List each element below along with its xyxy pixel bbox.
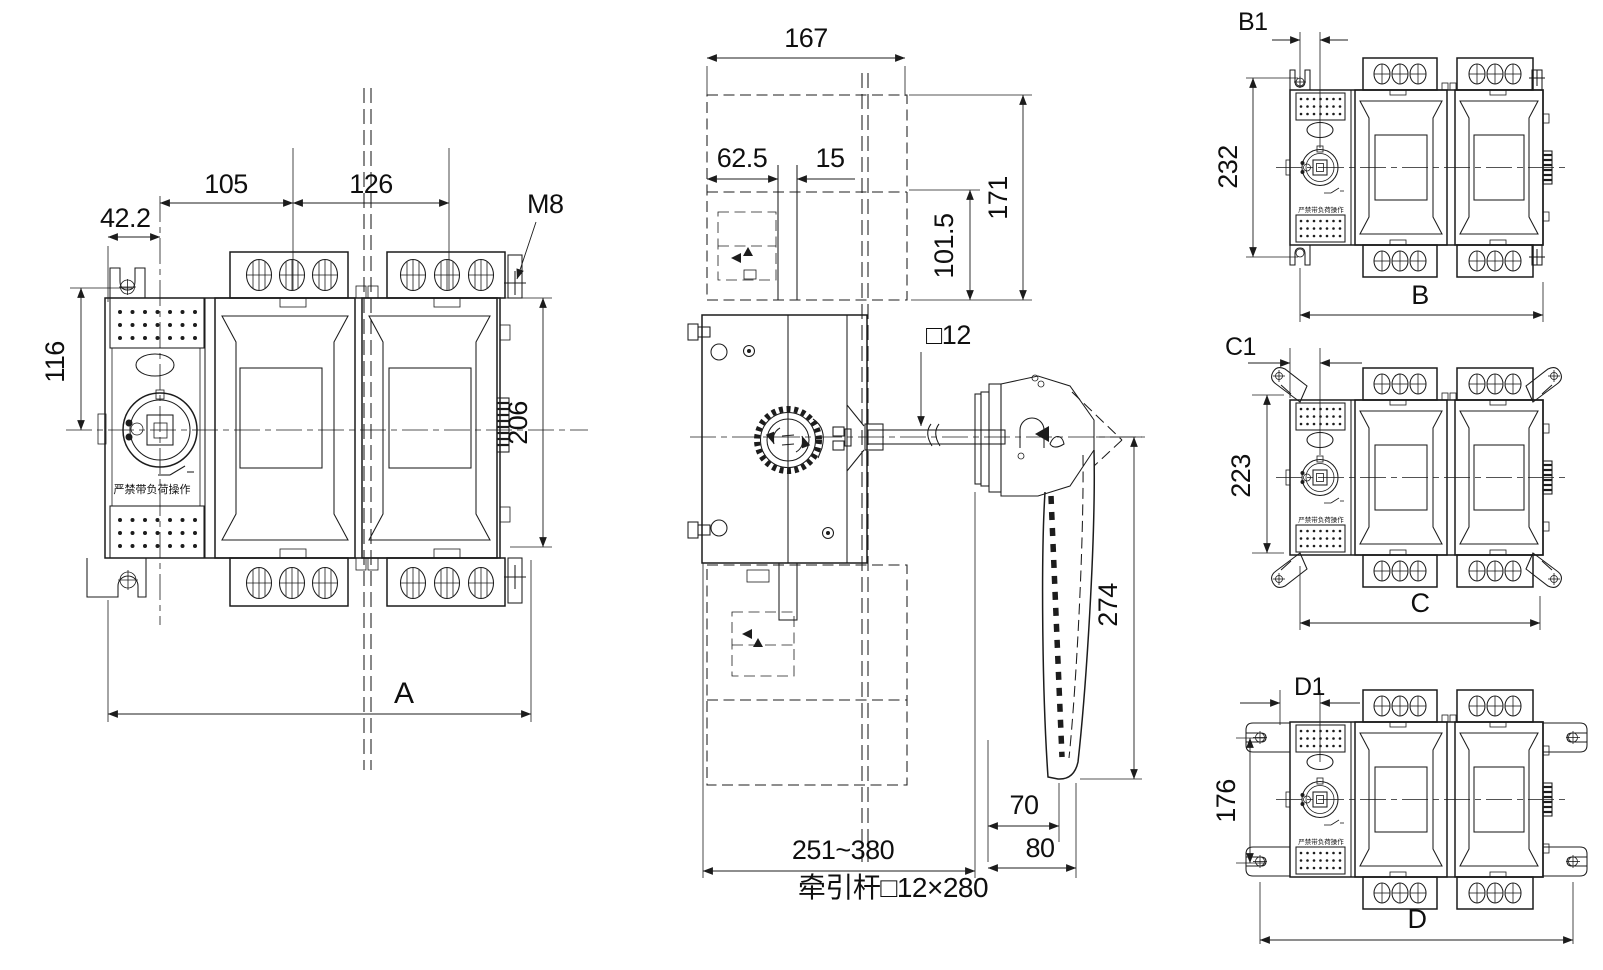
bracket-side-bottom-right — [1543, 847, 1587, 876]
bracket-wing-top-left — [1272, 368, 1307, 402]
bracket-wing-bottom-right — [1526, 553, 1561, 587]
dim-mount-to-center: 116 — [40, 341, 70, 383]
gear-actuator — [757, 409, 823, 471]
dim-176: 176 — [1211, 779, 1241, 823]
terminal-blocks — [230, 252, 505, 606]
mounting-bracket-top-left — [110, 268, 145, 298]
bracket-wing-top-right — [1526, 368, 1561, 402]
dim-body-height: 206 — [503, 401, 533, 445]
mounting-bracket-bottom-right — [504, 558, 526, 603]
dim-232: 232 — [1213, 145, 1243, 189]
dim-upper-height: 171 — [983, 176, 1013, 220]
dim-handle-length: 274 — [1093, 583, 1123, 627]
operating-handle — [975, 375, 1122, 779]
dim-pole-pitch-left: 105 — [204, 169, 248, 199]
dim-overall-width: A — [394, 677, 414, 710]
warning-label: 严禁带负荷操作 — [114, 482, 191, 496]
warning-label-small: 严禁带负荷操作 — [1298, 515, 1344, 524]
dim-b: B — [1411, 280, 1429, 310]
padlock-slot — [136, 354, 174, 376]
dim-grip-width: 70 — [1009, 790, 1038, 820]
dim-depth-range: 251~380 — [792, 835, 894, 865]
dim-handle-depth: 80 — [1025, 833, 1054, 863]
bracket-side-top-left — [1246, 723, 1290, 752]
breaker-outline-bottom — [707, 563, 907, 785]
variant-view-c: C1 223 C 严禁带负荷操作 — [1225, 333, 1570, 630]
transfer-switch-dimension-drawing: 严禁带负荷操作 — [0, 0, 1603, 970]
breaker-outline-top — [707, 95, 907, 300]
drawing-page: 严禁带负荷操作 — [0, 0, 1603, 970]
device-body — [105, 298, 500, 558]
bracket-wing-bottom-left — [1272, 553, 1307, 587]
dim-d1: D1 — [1294, 673, 1325, 701]
front-view: 严禁带负荷操作 — [40, 88, 588, 770]
traction-rod-caption: 牵引杆□12×280 — [798, 872, 988, 903]
warning-label-small: 严禁带负荷操作 — [1298, 837, 1344, 846]
mounting-bracket-bottom-left — [87, 558, 146, 597]
dim-d: D — [1408, 904, 1427, 934]
dim-c: C — [1411, 588, 1430, 618]
dim-lower-height: 101.5 — [929, 213, 959, 278]
side-view: 167 62.5 15 171 101.5 □12 274 251~380 — [688, 23, 1145, 903]
dim-shaft-section: □12 — [926, 320, 971, 350]
dim-b1: B1 — [1238, 8, 1268, 36]
dim-terminal-thread: M8 — [527, 189, 564, 219]
bracket-side-top-right — [1543, 723, 1587, 752]
variant-view-b: B1 232 B 严禁带负荷操作 — [1213, 8, 1570, 322]
dim-rail-gap: 15 — [815, 143, 844, 173]
variant-view-d: D1 176 D 严禁带负荷操作 — [1211, 673, 1587, 944]
pole-module-1 — [215, 298, 355, 558]
dim-pole-pitch-right: 126 — [349, 169, 393, 199]
dim-depth-top: 167 — [784, 23, 828, 53]
mechanism-body — [688, 315, 867, 563]
pole-module-2 — [362, 298, 497, 558]
dim-front-offset: 62.5 — [717, 143, 768, 173]
dim-c1: C1 — [1225, 333, 1256, 361]
bracket-side-bottom-left — [1246, 847, 1290, 876]
front-view-dimensions: 42.2 105 126 M8 116 206 A — [40, 148, 564, 722]
warning-label-small: 严禁带负荷操作 — [1298, 205, 1344, 214]
control-column: 严禁带负荷操作 — [110, 298, 204, 558]
dim-bracket-offset: 42.2 — [100, 203, 151, 233]
bracket-vertical-tab-bottom — [1290, 245, 1310, 265]
dim-223: 223 — [1226, 454, 1256, 498]
